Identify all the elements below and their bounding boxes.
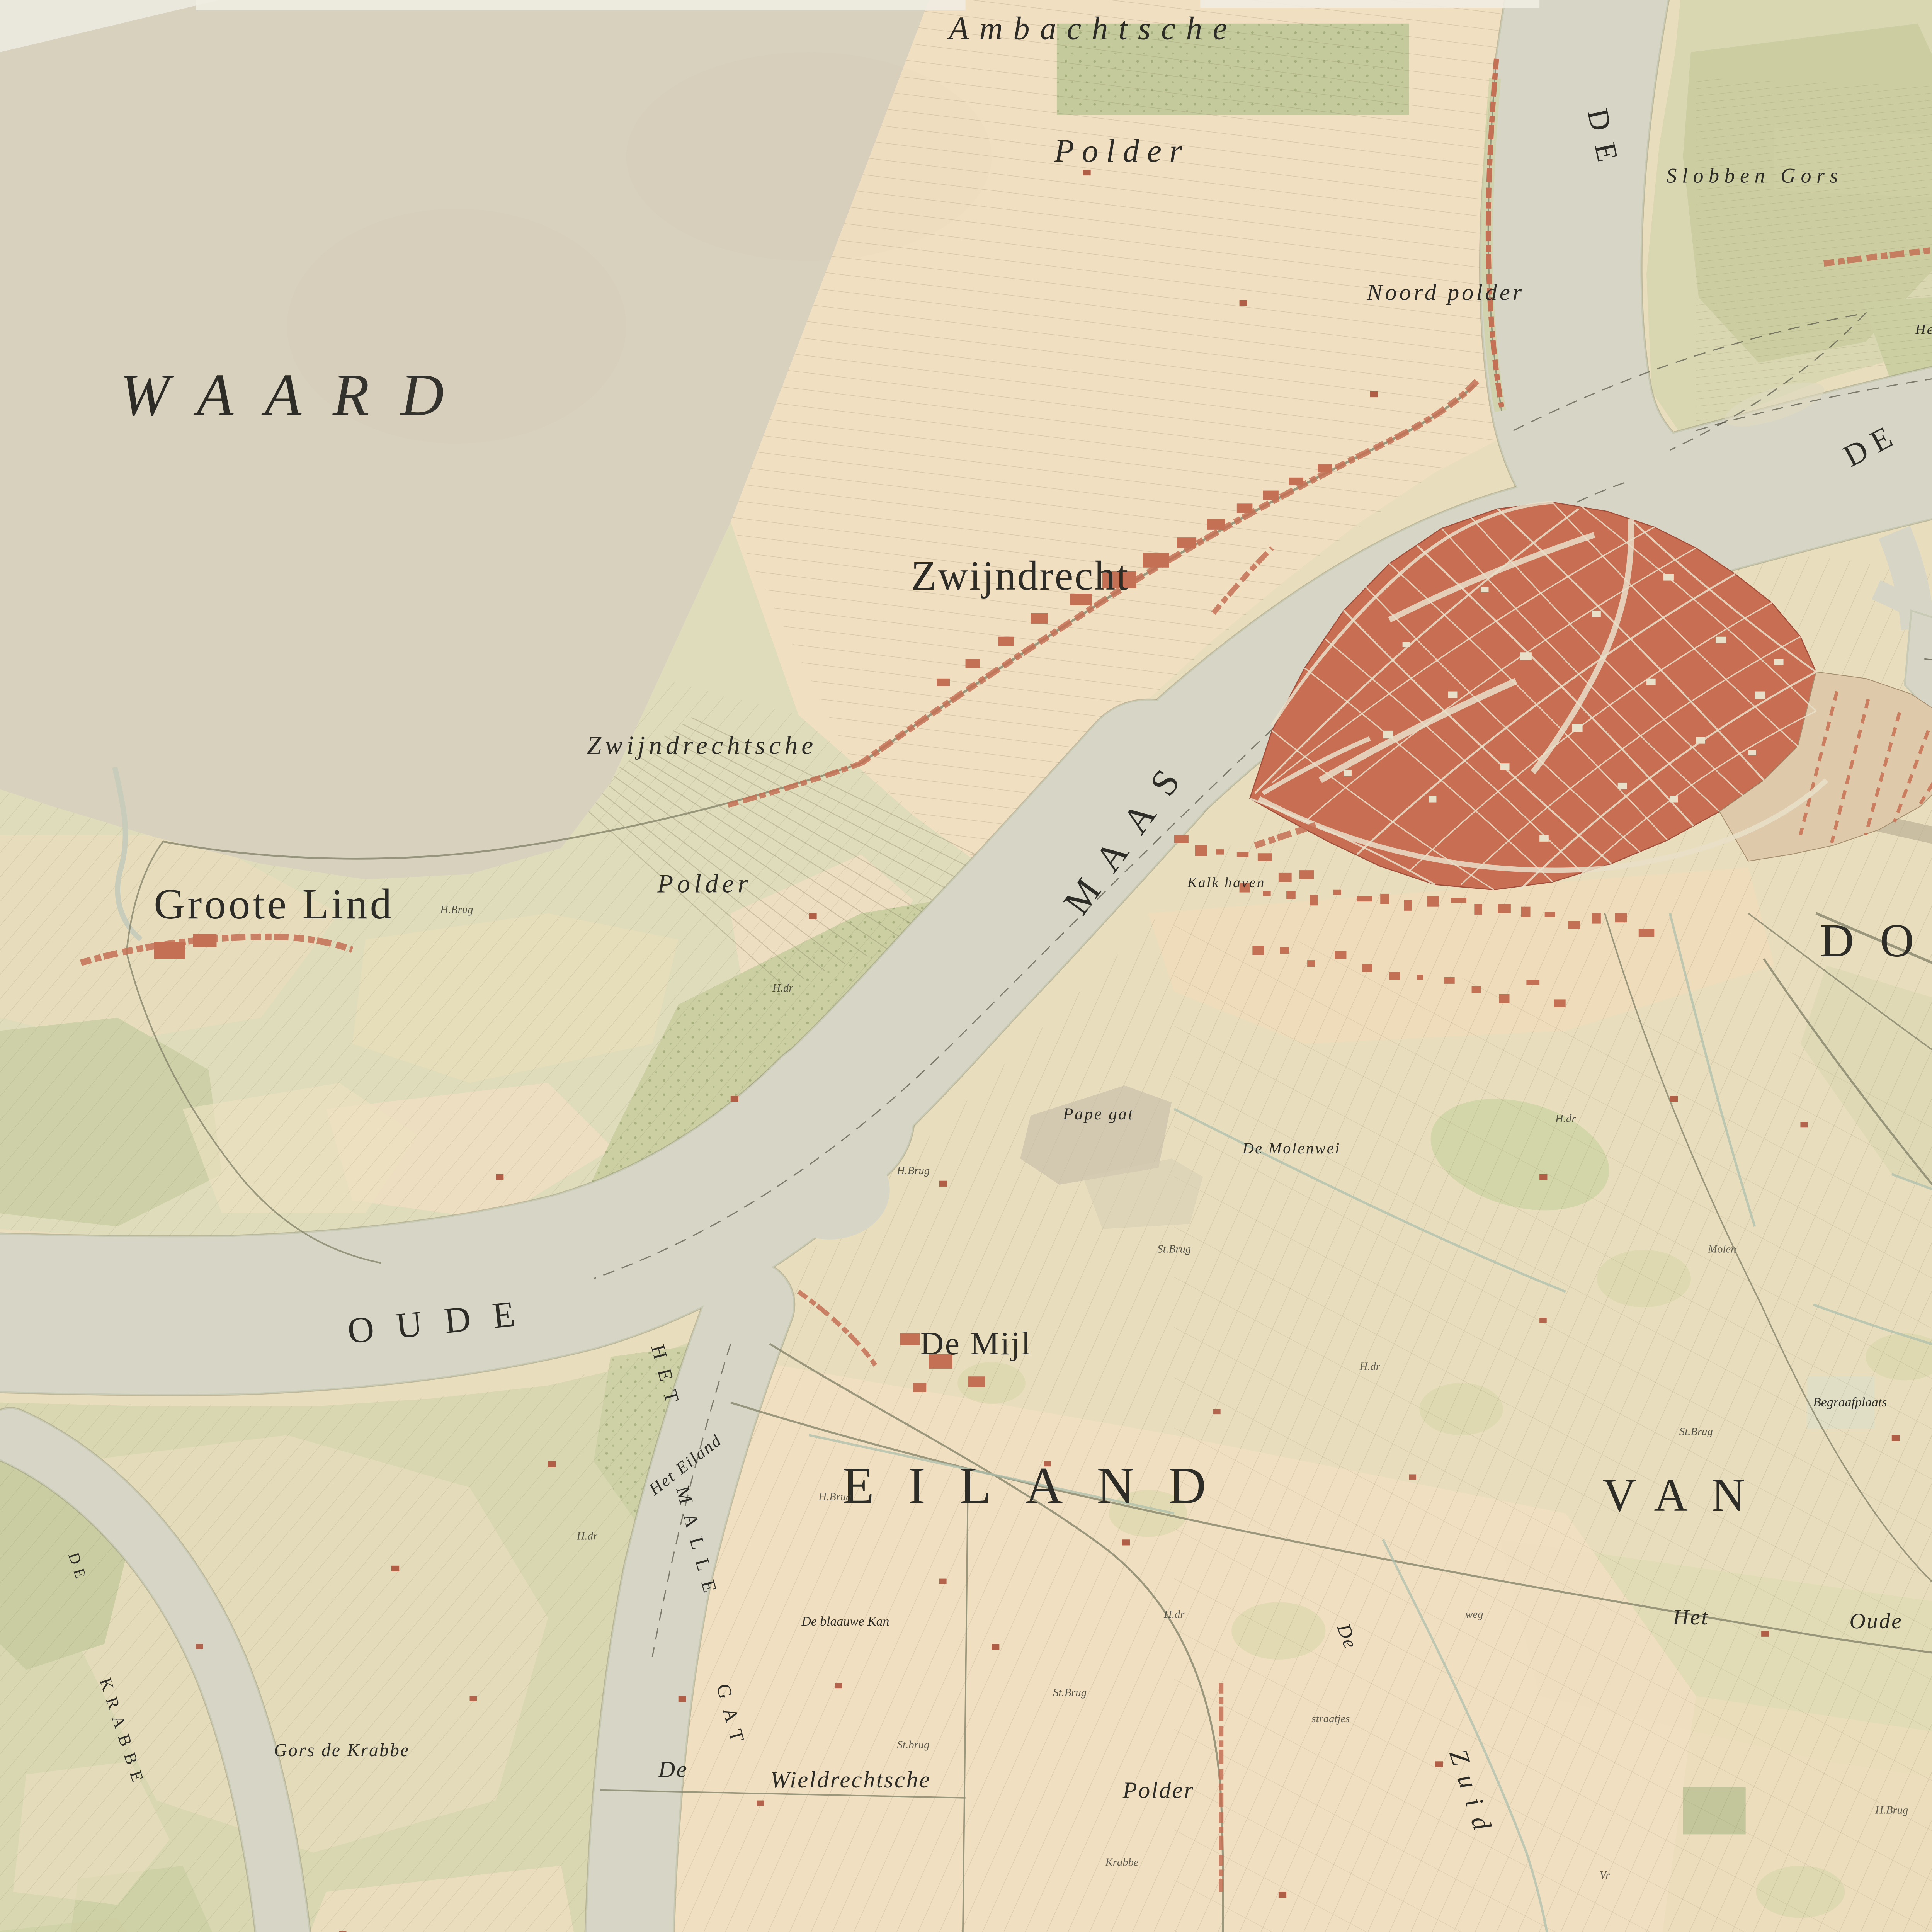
svg-text:Vr: Vr — [1600, 1869, 1610, 1881]
svg-text:Zwijndrechtsche: Zwijndrechtsche — [587, 731, 817, 760]
svg-text:De blaauwe Kan: De blaauwe Kan — [801, 1614, 889, 1629]
svg-text:H.dr: H.dr — [1555, 1112, 1576, 1125]
svg-text:H.dr: H.dr — [772, 982, 793, 994]
svg-text:St.brug: St.brug — [897, 1739, 930, 1751]
svg-text:Polder: Polder — [1054, 133, 1190, 169]
svg-text:H.dr: H.dr — [1163, 1608, 1185, 1621]
svg-text:straatjes: straatjes — [1312, 1713, 1350, 1725]
svg-text:weg: weg — [1465, 1608, 1483, 1621]
svg-text:Gors de Krabbe: Gors de Krabbe — [274, 1740, 410, 1760]
svg-text:DORDRECHT: DORDRECHT — [1820, 915, 1932, 967]
svg-text:De: De — [658, 1757, 688, 1782]
svg-text:Krabbe: Krabbe — [1105, 1856, 1139, 1868]
svg-text:Kalk haven: Kalk haven — [1187, 875, 1265, 891]
svg-text:H.Brug: H.Brug — [1875, 1804, 1908, 1816]
svg-text:Noord polder: Noord polder — [1366, 280, 1524, 306]
svg-text:Wieldrechtsche: Wieldrechtsche — [770, 1767, 931, 1793]
svg-text:Het Eiland: Het Eiland — [1915, 321, 1932, 337]
svg-text:St.Brug: St.Brug — [1157, 1243, 1191, 1255]
svg-text:Zwijndrecht: Zwijndrecht — [911, 553, 1129, 599]
svg-text:Groote Lind: Groote Lind — [154, 881, 394, 928]
svg-text:Slobben Gors: Slobben Gors — [1666, 164, 1843, 187]
svg-text:Oude: Oude — [1849, 1609, 1903, 1633]
svg-text:De Molenwei: De Molenwei — [1242, 1139, 1341, 1157]
svg-text:H.Brug: H.Brug — [440, 904, 473, 916]
svg-text:St.Brug: St.Brug — [1053, 1686, 1087, 1699]
svg-text:De Mijl: De Mijl — [920, 1326, 1032, 1362]
svg-text:Het: Het — [1672, 1605, 1709, 1629]
svg-text:Begraafplaats: Begraafplaats — [1813, 1395, 1887, 1410]
svg-text:H.dr: H.dr — [577, 1530, 598, 1542]
svg-text:VAN: VAN — [1602, 1469, 1769, 1521]
svg-text:H.Brug: H.Brug — [818, 1491, 851, 1503]
svg-text:Polder: Polder — [1122, 1777, 1194, 1803]
svg-text:St.Brug: St.Brug — [1679, 1425, 1713, 1438]
svg-text:Polder: Polder — [657, 869, 752, 898]
svg-text:Ambachtsche: Ambachtsche — [947, 10, 1238, 46]
svg-text:H.dr: H.dr — [1359, 1360, 1381, 1372]
svg-text:Molen: Molen — [1708, 1243, 1736, 1255]
svg-text:Pape gat: Pape gat — [1063, 1105, 1134, 1123]
svg-text:EILAND: EILAND — [842, 1457, 1240, 1515]
svg-text:H.Brug: H.Brug — [896, 1165, 930, 1177]
